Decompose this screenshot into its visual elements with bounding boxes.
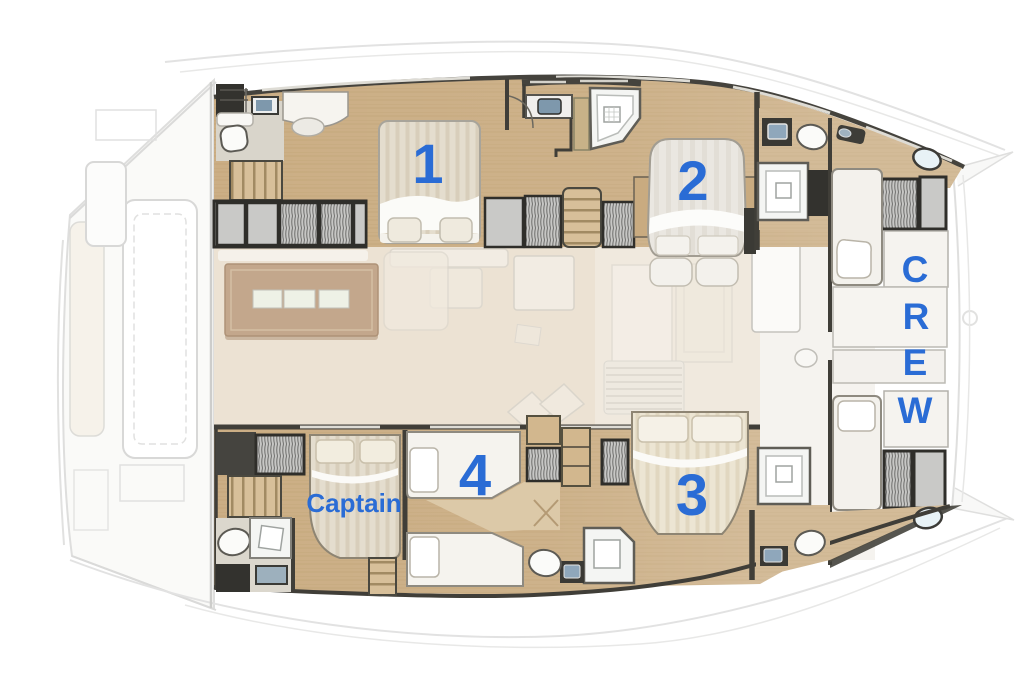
svg-text:4: 4 — [459, 443, 491, 508]
svg-text:C: C — [902, 249, 929, 290]
svg-text:2: 2 — [677, 149, 708, 212]
svg-text:1: 1 — [412, 132, 443, 195]
svg-text:E: E — [903, 342, 928, 383]
svg-text:R: R — [903, 296, 930, 337]
svg-text:Captain: Captain — [306, 488, 401, 518]
svg-text:3: 3 — [676, 463, 708, 528]
svg-text:W: W — [898, 390, 933, 431]
